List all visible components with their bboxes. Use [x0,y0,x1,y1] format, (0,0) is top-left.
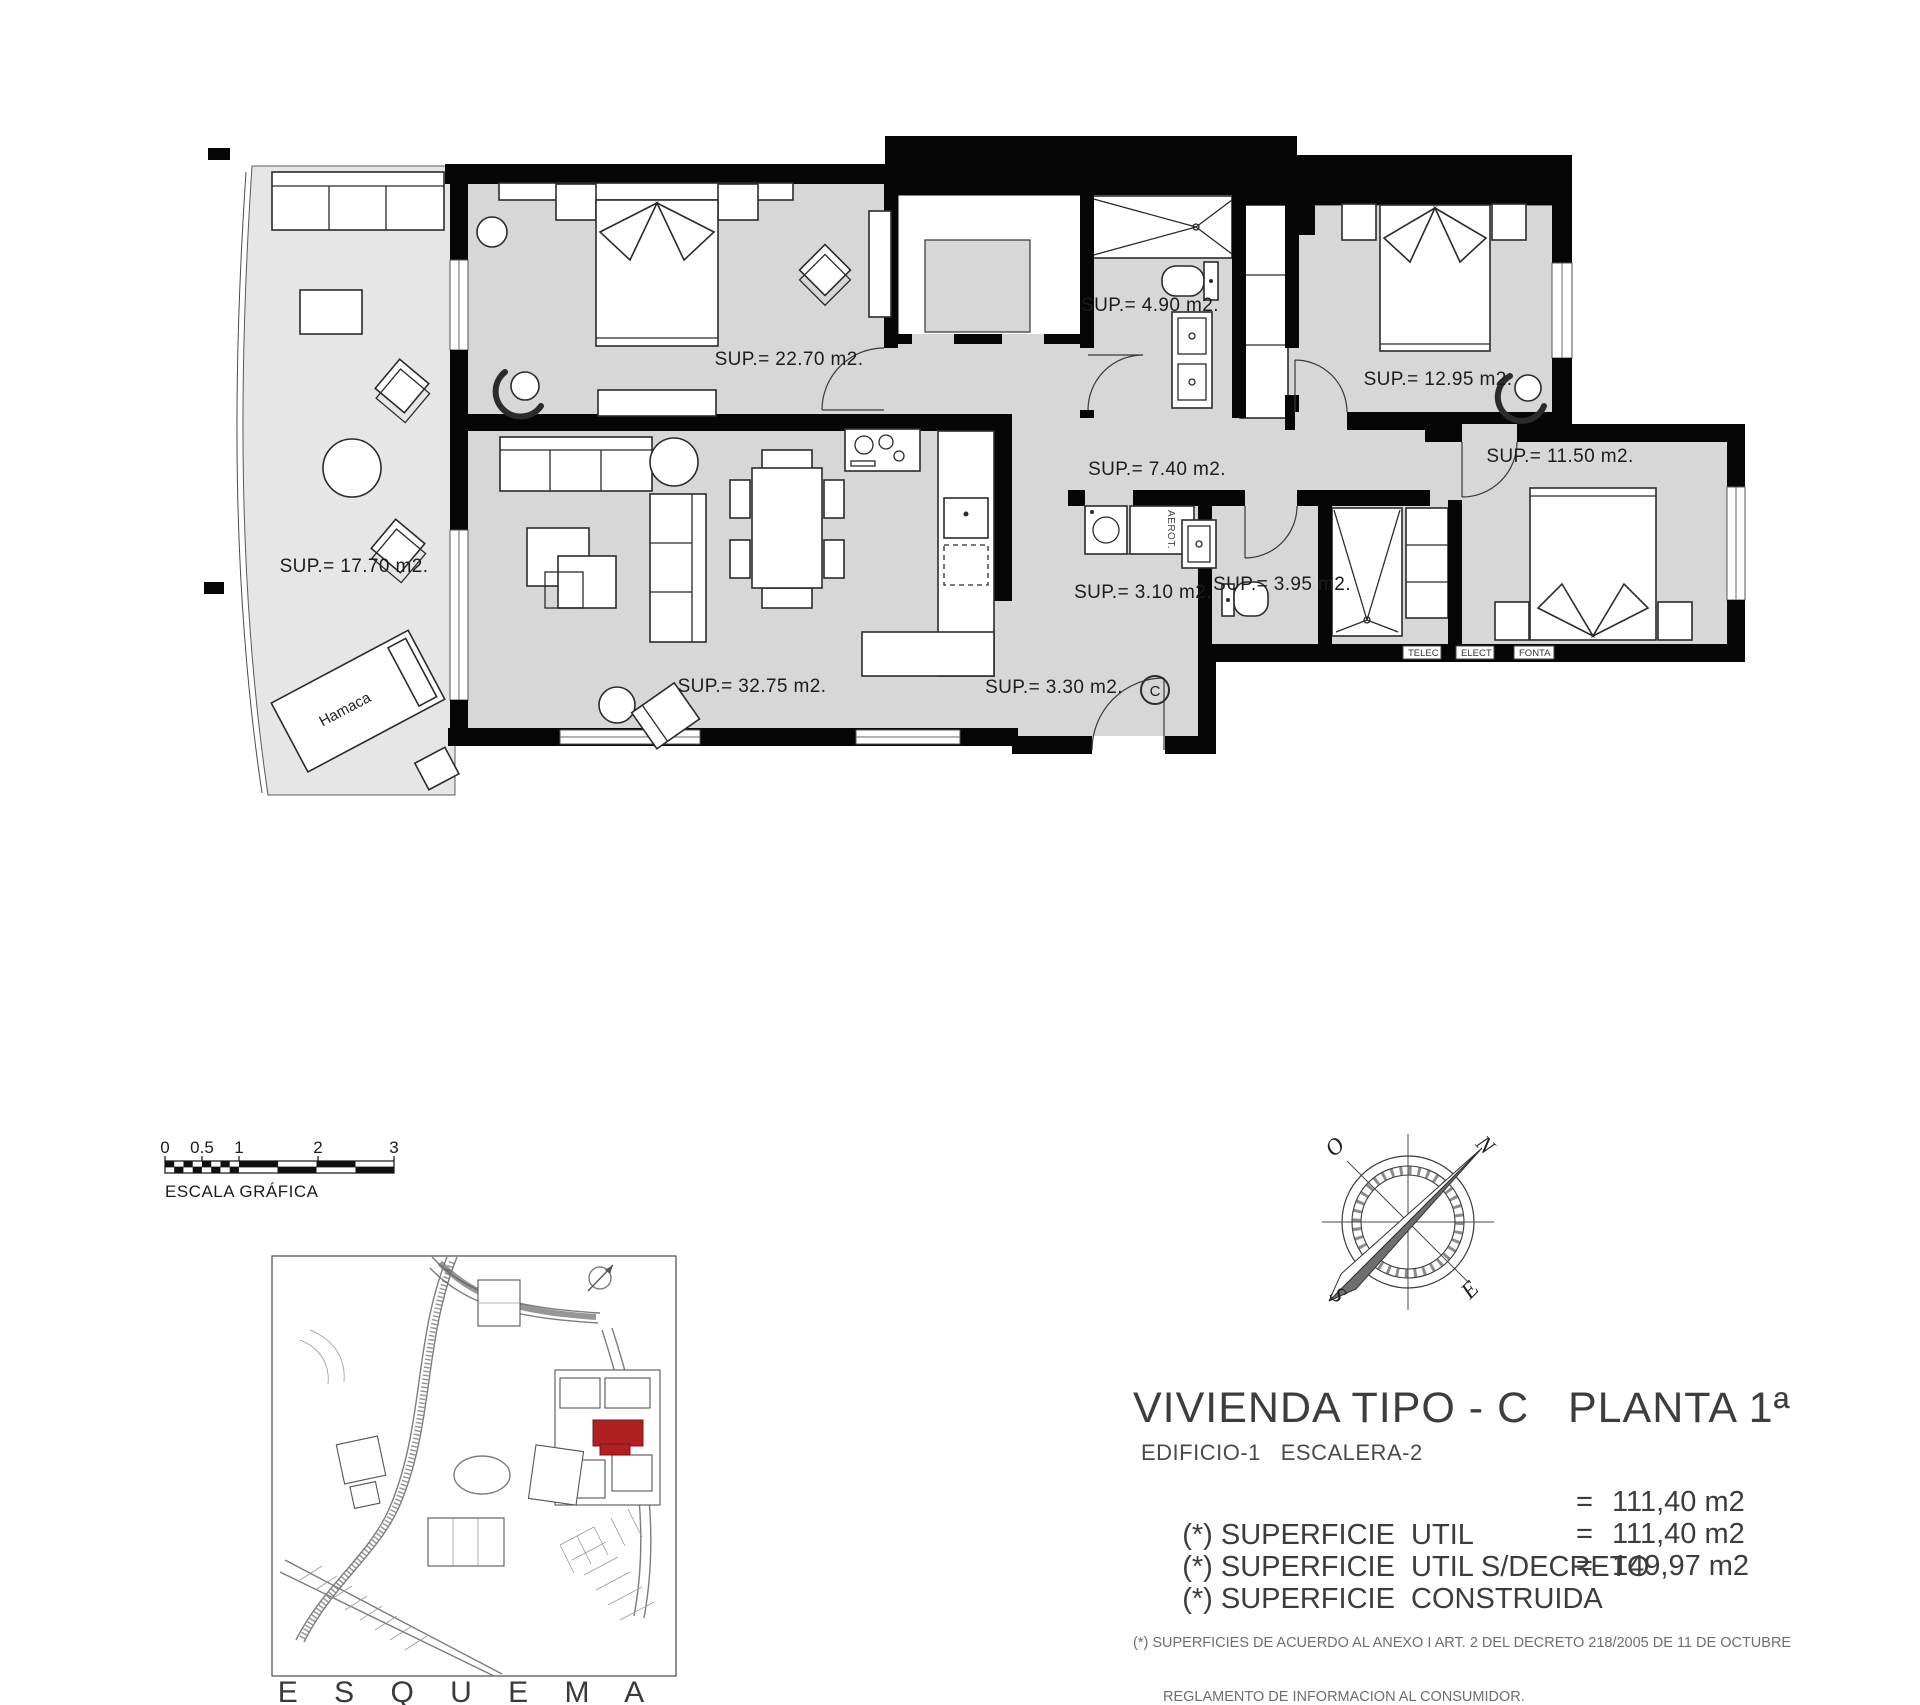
scale-tick-0: 0 [160,1138,169,1157]
label-terrace: SUP.= 17.70 m2. [280,556,429,577]
walkin-closet-wardrobe [925,240,1030,332]
site-building-cluster-c [336,1436,385,1508]
esquema-caption: E S Q U E M A [278,1676,658,1705]
terrace-pilaster [204,582,224,594]
utility-box-elect: ELECT [1461,648,1492,659]
label-living-room: SUP.= 32.75 m2. [678,676,827,697]
utility-boxes: TELEC ELECT FONTA [1403,646,1554,659]
label-laundry: SUP.= 3.10 m2. [1074,582,1212,603]
scale-tick-1: 1 [234,1138,243,1157]
bath2-door-gap [1245,490,1297,506]
utility-box-fonta: FONTA [1519,648,1551,659]
label-bedroom3: SUP.= 11.50 m2. [1486,446,1633,467]
scale-tick-2: 2 [313,1138,322,1157]
footnote: (*) SUPERFICIES DE ACUERDO AL ANEXO I AR… [1133,1598,1791,1705]
scale-bar: 0 0.5 1 2 3 ESCALA GRÁFICA [160,1138,398,1201]
site-plan: E S Q U E M A [272,1256,676,1705]
unit-marker-letter: C [1150,683,1161,700]
aerot-label: AEROT. [1165,510,1176,549]
shower-1 [1090,196,1232,258]
bath1-door-gap [1080,348,1094,410]
compass-s: S [1325,1282,1351,1308]
page-subtitle: EDIFICIO-1 ESCALERA-2 [1141,1440,1423,1466]
page-title: VIVIENDA TIPO - C PLANTA 1ª [1133,1384,1790,1433]
utility-box-telec: TELEC [1408,648,1439,659]
shower-2 [1332,508,1402,636]
scale-tick-3: 3 [389,1138,398,1157]
area-row-eq: = [1576,1486,1593,1519]
entrance-door-gap [1092,736,1165,754]
bedroom2-door-gap [1295,412,1347,430]
scale-bar-graphic [165,1156,394,1173]
label-bedroom2: SUP.= 12.95 m2. [1364,369,1513,390]
terrace-pilaster [208,148,230,160]
highlighted-unit [593,1420,643,1446]
scale-tick-05: 0.5 [190,1138,214,1157]
label-entrance: SUP.= 3.30 m2. [985,677,1123,698]
floor-plan-sheet-drawing: Hamaca [0,0,1920,1705]
compass-e: E [1455,1276,1483,1304]
closet-strip-bedroom3 [1406,508,1448,618]
master-door-gap [884,348,898,410]
scale-caption: ESCALA GRÁFICA [165,1182,319,1201]
closet-strip-bedroom2 [1240,205,1288,418]
compass-o: O [1320,1132,1350,1162]
footnote-line2: REGLAMENTO DE INFORMACION AL CONSUMIDOR. [1133,1688,1791,1705]
area-row-value: 149,97 m2 [1612,1550,1749,1583]
label-hallway: SUP.= 7.40 m2. [1088,459,1226,480]
label-bathroom1: SUP.= 4.90 m2. [1081,295,1219,316]
laundry-door-gap [1085,490,1133,506]
label-bathroom2: SUP.= 3.95 m2. [1213,574,1351,595]
site-compass-icon [588,1265,613,1291]
footnote-line1: (*) SUPERFICIES DE ACUERDO AL ANEXO I AR… [1133,1634,1791,1652]
closet-door-gap-1 [912,334,954,344]
area-row-eq: = [1576,1518,1593,1551]
site-plan-map [280,1257,660,1676]
plan-sheet: Hamaca [0,0,1920,1705]
closet-door-gap-2 [1002,334,1044,344]
compass-rose: N O S E [1320,1130,1501,1310]
area-row-value: 111,40 m2 [1612,1486,1745,1519]
bedroom3-door-gap [1462,424,1517,442]
label-master-bedroom: SUP.= 22.70 m2. [715,349,864,370]
laundry-fixtures: AEROT. [1085,506,1194,554]
area-row-value: 111,40 m2 [1612,1518,1745,1551]
area-row-eq: = [1576,1550,1593,1583]
floor-plan: Hamaca [204,136,1745,795]
